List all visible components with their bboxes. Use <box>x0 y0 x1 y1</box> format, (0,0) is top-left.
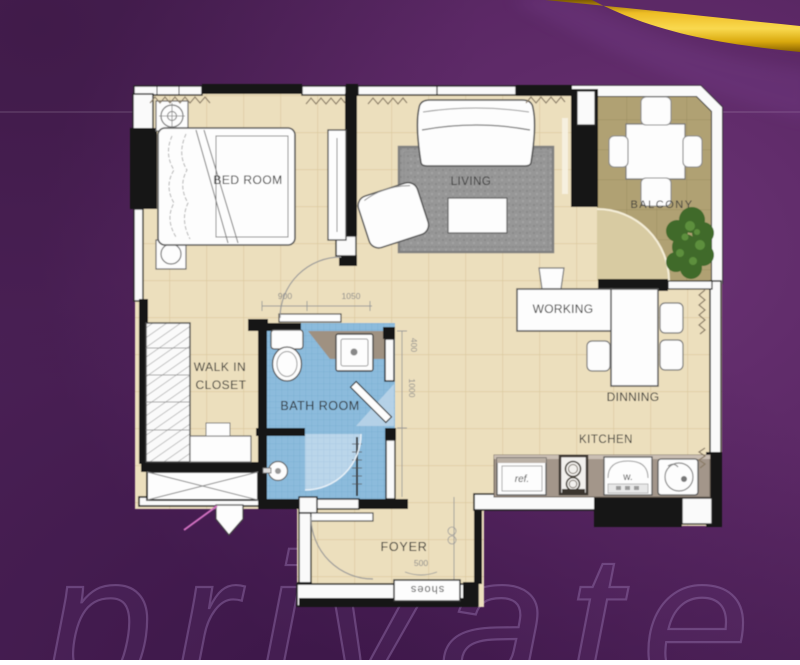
svg-text:CLOSET: CLOSET <box>195 378 246 392</box>
svg-text:BALCONY: BALCONY <box>630 199 693 211</box>
svg-text:900: 900 <box>278 291 292 301</box>
svg-text:shoes: shoes <box>410 583 444 595</box>
svg-text:KITCHEN: KITCHEN <box>579 434 633 446</box>
svg-text:WALK IN: WALK IN <box>194 360 246 374</box>
svg-text:DINNING: DINNING <box>607 390 660 404</box>
svg-text:BATH ROOM: BATH ROOM <box>280 399 359 413</box>
svg-text:ref.: ref. <box>515 474 529 485</box>
svg-text:FOYER: FOYER <box>380 540 427 554</box>
svg-text:w.: w. <box>622 472 632 483</box>
svg-text:LIVING: LIVING <box>451 176 492 188</box>
svg-text:WORKING: WORKING <box>533 302 594 316</box>
svg-text:BED ROOM: BED ROOM <box>213 173 282 187</box>
svg-text:400: 400 <box>409 338 419 352</box>
svg-text:500: 500 <box>414 558 428 568</box>
svg-text:1000: 1000 <box>407 379 417 398</box>
svg-text:1050: 1050 <box>342 291 361 301</box>
